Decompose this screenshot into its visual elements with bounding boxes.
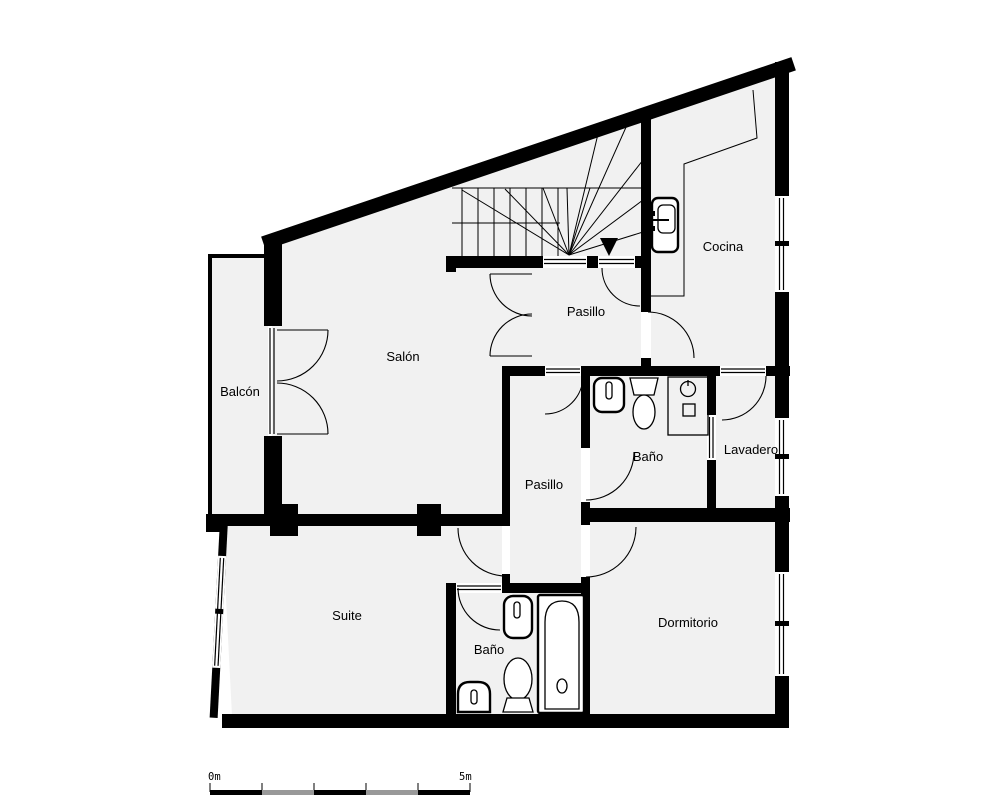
pillar bbox=[270, 504, 298, 536]
bathtub-icon bbox=[538, 595, 584, 713]
room-label-bano-principal: Baño bbox=[633, 449, 663, 464]
south-exterior-wall bbox=[222, 714, 789, 728]
bath-south-wall bbox=[581, 508, 790, 522]
pillar bbox=[417, 504, 441, 536]
room-label-cocina: Cocina bbox=[703, 239, 744, 254]
kitchen-window bbox=[775, 196, 789, 292]
room-label-balcon: Balcón bbox=[220, 384, 260, 399]
bathroom-sink-icon bbox=[594, 378, 624, 412]
balcony-wall-upper bbox=[264, 236, 282, 326]
room-label-dormitorio: Dormitorio bbox=[658, 615, 718, 630]
floor-plan-page: Balcón Salón Pasillo Cocina Baño Lavader… bbox=[0, 0, 1000, 800]
room-label-suite: Suite bbox=[332, 608, 362, 623]
floor-plan-drawing: Balcón Salón Pasillo Cocina Baño Lavader… bbox=[0, 0, 1000, 800]
room-label-pasillo-superior: Pasillo bbox=[567, 304, 605, 319]
suite-sink-icon bbox=[504, 596, 532, 638]
balcony-railing-west bbox=[208, 254, 212, 520]
bedroom-window bbox=[775, 572, 789, 676]
room-label-salon: Salón bbox=[386, 349, 419, 364]
room-label-lavadero: Lavadero bbox=[724, 442, 778, 457]
bidet-icon bbox=[458, 682, 490, 712]
scale-end-label: 5m bbox=[459, 771, 472, 783]
salon-south-wall bbox=[206, 514, 508, 526]
laundry-window bbox=[775, 418, 789, 496]
kitchen-sink-icon bbox=[650, 198, 678, 252]
suite-toilet-icon bbox=[503, 658, 533, 712]
windows bbox=[775, 196, 789, 676]
suite-bath-divider bbox=[446, 583, 456, 728]
scale-start-label: 0m bbox=[208, 771, 221, 783]
toilet-icon bbox=[630, 378, 658, 429]
balcony-railing-north bbox=[208, 254, 266, 258]
room-label-bano-suite: Baño bbox=[474, 642, 504, 657]
room-label-pasillo-inferior: Pasillo bbox=[525, 477, 563, 492]
